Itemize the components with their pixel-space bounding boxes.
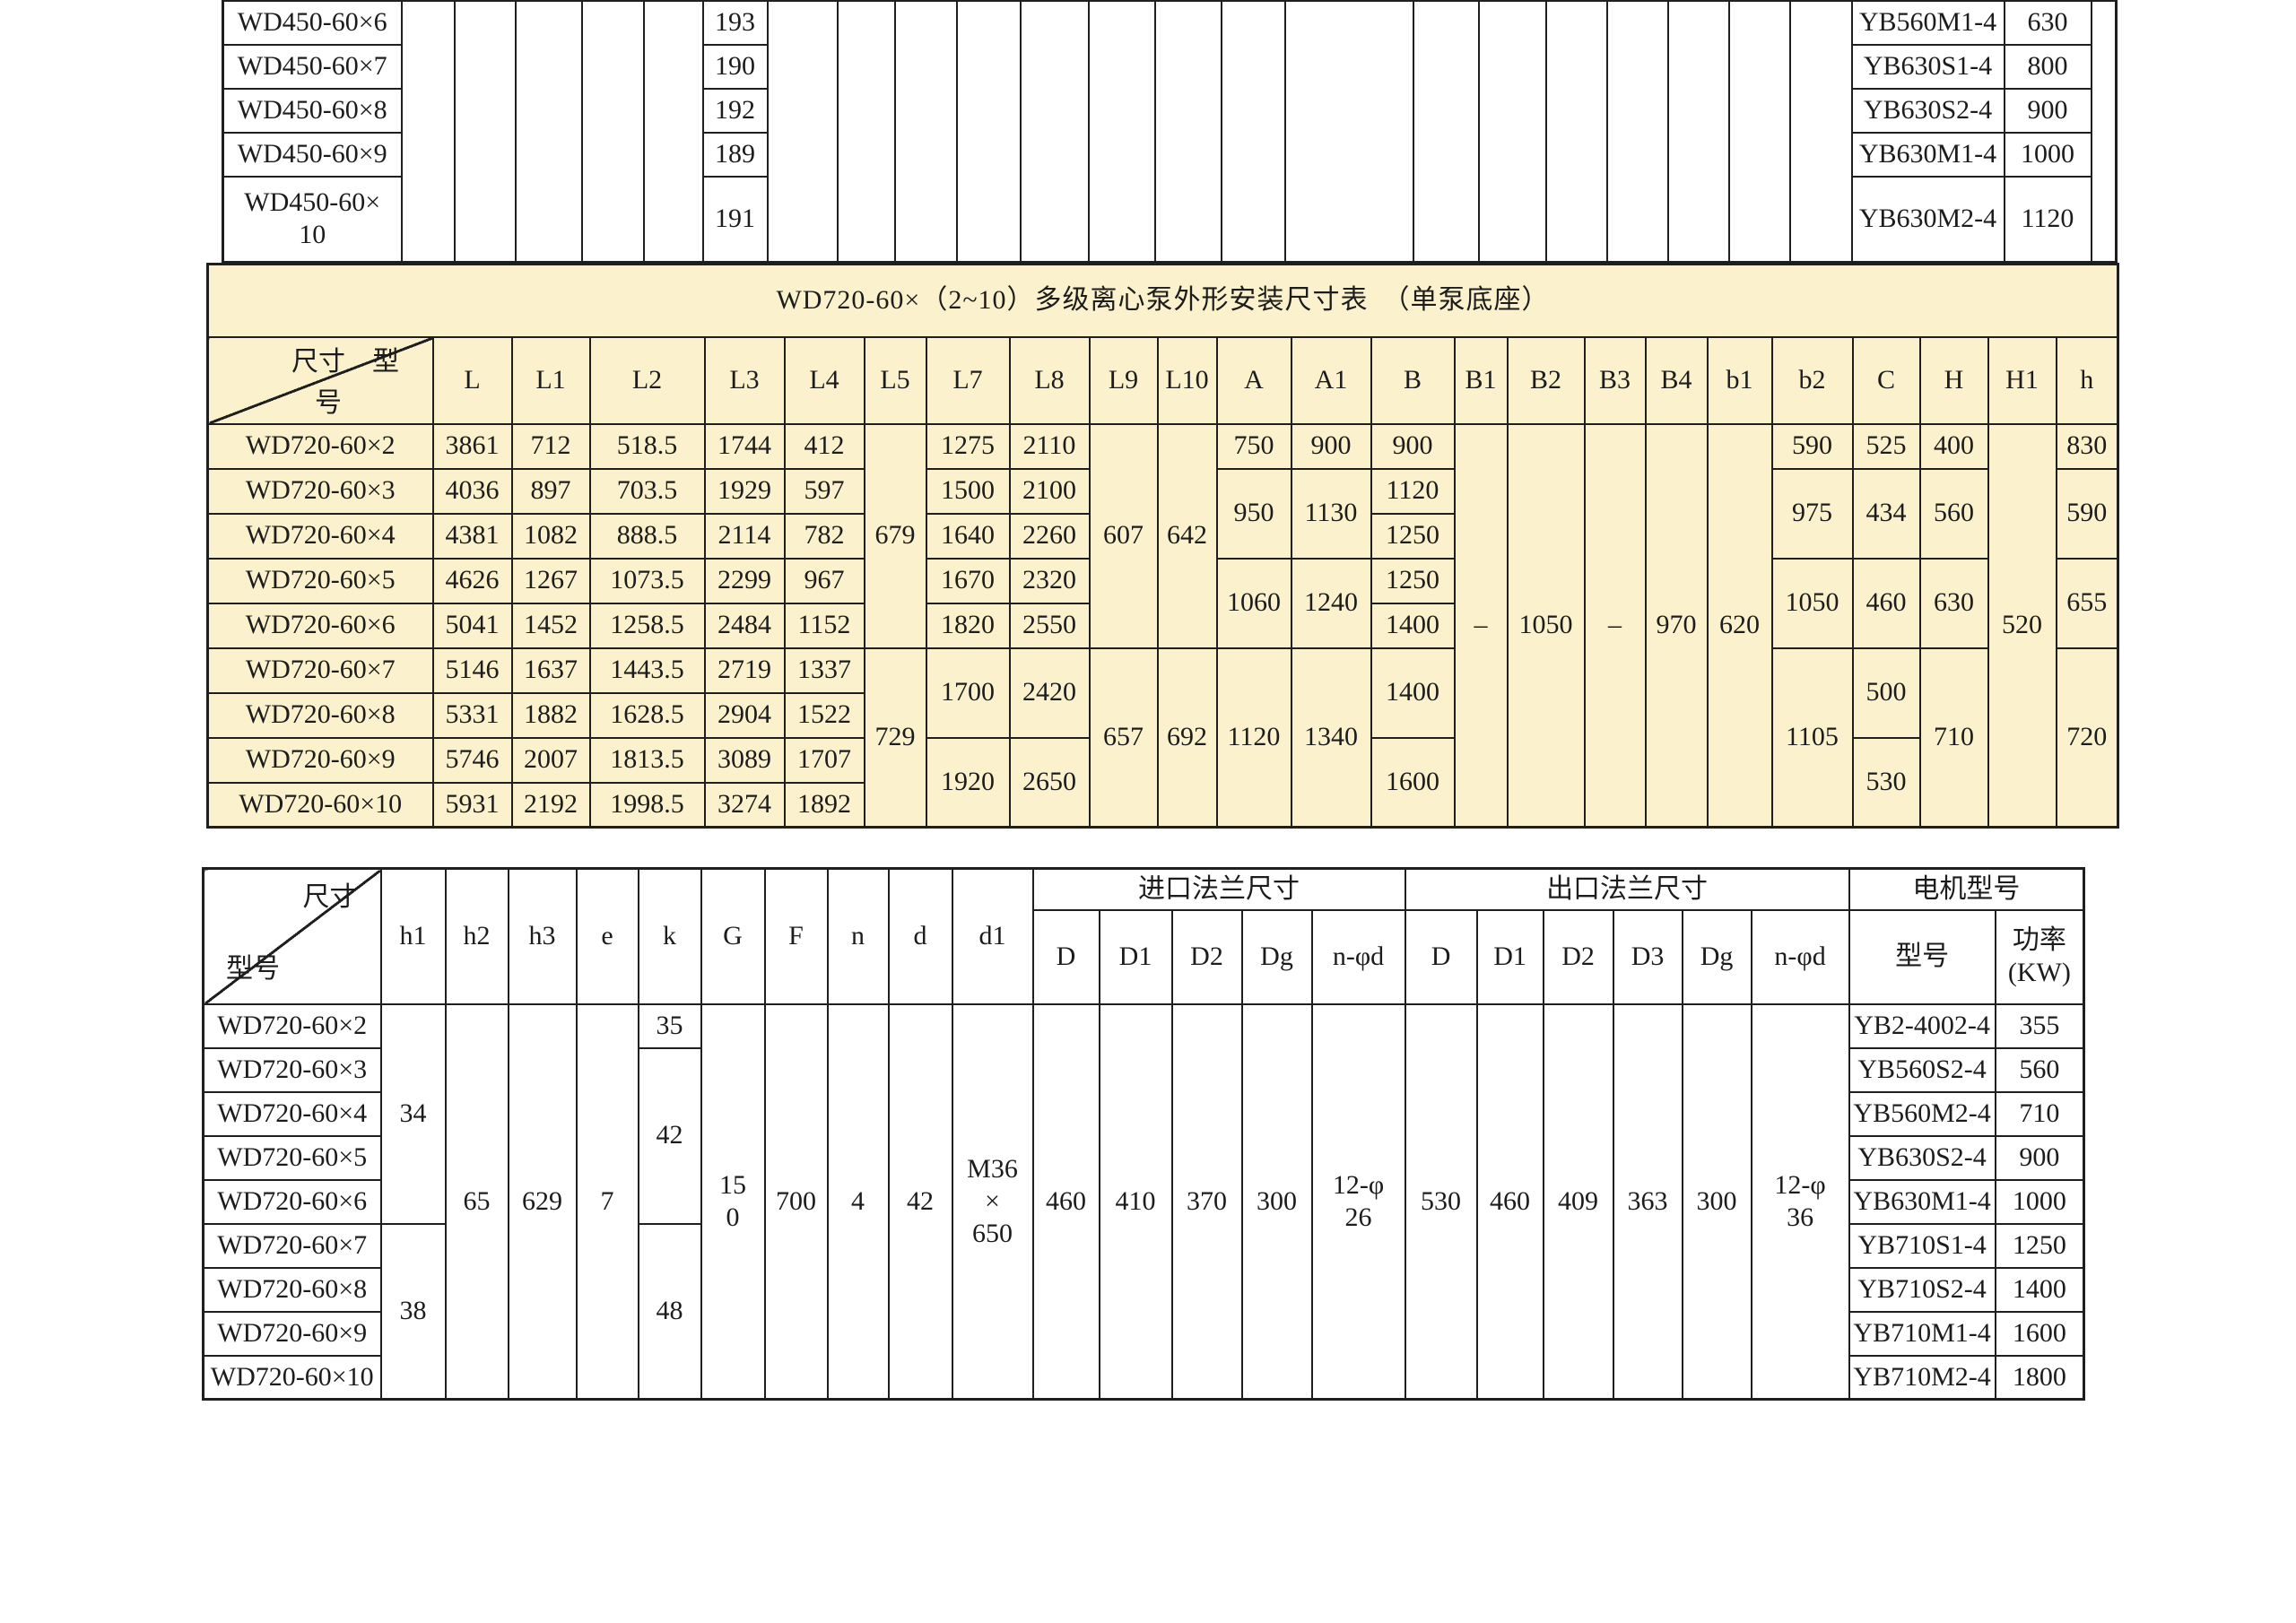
motor-power-cell: 560 (1996, 1048, 2084, 1092)
dim-cell-h: 720 (2057, 648, 2118, 828)
inlet-nphid-cell: 12-φ 26 (1312, 1004, 1405, 1400)
dim-cell-B: 1250 (1371, 514, 1455, 559)
motor-model-cell: YB710M2-4 (1849, 1356, 1996, 1400)
empty-cell (1790, 1, 1852, 262)
dim-cell-L3: 3274 (705, 783, 785, 828)
motor-power-cell: 800 (2005, 45, 2092, 89)
dim-cell-L4: 1152 (785, 603, 865, 648)
empty-cell (957, 1, 1021, 262)
outlet-flange-group-header: 出口法兰尺寸 (1405, 869, 1849, 910)
model-cell: WD720-60×4 (208, 514, 433, 559)
motor-power-cell: 1000 (2005, 133, 2092, 177)
header-cell: D2 (1544, 910, 1613, 1004)
empty-cell (1607, 1, 1668, 262)
dim-cell-L1: 1082 (512, 514, 590, 559)
dim-cell-B: 1250 (1371, 559, 1455, 603)
outlet-nphid-cell: 12-φ 36 (1752, 1004, 1849, 1400)
value-line: 36 (1752, 1202, 1848, 1234)
dim-cell-L10: 642 (1158, 424, 1217, 648)
dim-cell-h3: 629 (509, 1004, 577, 1400)
header-cell: D1 (1477, 910, 1544, 1004)
header-cell: Dg (1242, 910, 1312, 1004)
dim-cell-h1: 34 (381, 1004, 446, 1224)
dim-cell-L8: 2110 (1010, 424, 1090, 469)
document-page: { "colors":{"table_fill":"#fbf2cd","line… (0, 0, 2296, 1623)
value-line: 650 (953, 1218, 1032, 1250)
header-cell: L4 (785, 337, 865, 424)
dim-cell-B: 1400 (1371, 648, 1455, 738)
model-cell: WD720-60×3 (204, 1048, 381, 1092)
motor-model-cell: YB710S2-4 (1849, 1268, 1996, 1312)
header-cell: B (1371, 337, 1455, 424)
dim-cell-L7: 1920 (926, 738, 1010, 828)
model-cell: WD720-60×4 (204, 1092, 381, 1136)
dim-cell-C: 434 (1853, 469, 1920, 559)
dim-cell-L2: 518.5 (590, 424, 705, 469)
dim-cell-h2: 65 (446, 1004, 509, 1400)
dim-cell-G: 15 0 (701, 1004, 765, 1400)
value-line: × (953, 1185, 1032, 1218)
empty-cell (644, 1, 703, 262)
empty-cell (1222, 1, 1285, 262)
header-cell: b2 (1772, 337, 1853, 424)
dim-cell-h: 830 (2057, 424, 2118, 469)
dim-cell-L: 5041 (433, 603, 512, 648)
header-cell: A (1217, 337, 1291, 424)
dim-cell-L: 4381 (433, 514, 512, 559)
motor-model-cell: YB630M1-4 (1849, 1180, 1996, 1224)
dim-cell-k: 48 (639, 1224, 701, 1400)
dim-cell-C: 525 (1853, 424, 1920, 469)
inlet-Dg-cell: 300 (1242, 1004, 1312, 1400)
dim-cell-A: 950 (1217, 469, 1291, 559)
dim-cell-L: 5746 (433, 738, 512, 783)
dim-cell-d1: M36 × 650 (952, 1004, 1033, 1400)
dim-cell-L2: 888.5 (590, 514, 705, 559)
header-cell: e (577, 869, 639, 1004)
model-cell: WD720-60×8 (204, 1268, 381, 1312)
dim-cell-L3: 2719 (705, 648, 785, 693)
header-cell: n (828, 869, 889, 1004)
motor-power-cell: 1400 (1996, 1268, 2084, 1312)
wd450-spec-table: WD450-60×6 193 YB560M1-4 630 WD450-60×7 … (222, 0, 2118, 264)
dim-cell-L9: 657 (1090, 648, 1158, 828)
motor-model-cell: YB630S1-4 (1852, 45, 2005, 89)
motor-model-cell: YB560M2-4 (1849, 1092, 1996, 1136)
header-cell: A1 (1291, 337, 1371, 424)
header-cell: h2 (446, 869, 509, 1004)
header-cell: n-φd (1312, 910, 1405, 1004)
dim-cell: 192 (703, 89, 768, 133)
dim-cell-B2: 1050 (1508, 424, 1585, 828)
dim-cell-H: 560 (1920, 469, 1988, 559)
dim-cell-A1: 1240 (1291, 559, 1371, 648)
power-header-line: 功率 (1996, 924, 2083, 957)
header-cell: d1 (952, 869, 1033, 1004)
header-cell: L10 (1158, 337, 1217, 424)
dim-cell-F: 700 (765, 1004, 828, 1400)
dim-cell-L1: 1637 (512, 648, 590, 693)
dim-cell-B: 1400 (1371, 603, 1455, 648)
dim-cell-L2: 1073.5 (590, 559, 705, 603)
dim-cell-L1: 1267 (512, 559, 590, 603)
corner-label-dimension: 尺寸 型 (291, 347, 399, 378)
header-cell: G (701, 869, 765, 1004)
dim-cell-L4: 597 (785, 469, 865, 514)
dim-cell-L2: 1628.5 (590, 693, 705, 738)
dim-cell-h: 655 (2057, 559, 2118, 648)
model-cell: WD720-60×2 (204, 1004, 381, 1048)
dim-cell-L4: 967 (785, 559, 865, 603)
dim-cell-A1: 1340 (1291, 648, 1371, 828)
model-cell: WD450-60×6 (223, 1, 402, 45)
dim-cell-L3: 1929 (705, 469, 785, 514)
header-cell: B3 (1585, 337, 1646, 424)
corner-label-model: 号 (315, 388, 342, 420)
wd720-outline-dimension-table: WD720-60×（2~10）多级离心泵外形安装尺寸表 （单泵底座） 尺寸 型 … (206, 263, 2119, 829)
model-cell: WD720-60×9 (204, 1312, 381, 1356)
dim-cell-L7: 1275 (926, 424, 1010, 469)
inlet-D2-cell: 370 (1172, 1004, 1242, 1400)
dim-cell-A1: 900 (1291, 424, 1371, 469)
dim-cell-L2: 1813.5 (590, 738, 705, 783)
dim-cell-L: 5931 (433, 783, 512, 828)
dim-cell-A: 750 (1217, 424, 1291, 469)
motor-power-cell: 1800 (1996, 1356, 2084, 1400)
dim-cell-L1: 712 (512, 424, 590, 469)
dim-cell-L5: 679 (865, 424, 926, 648)
header-cell: L (433, 337, 512, 424)
header-cell: B2 (1508, 337, 1585, 424)
dim-cell-L5: 729 (865, 648, 926, 828)
dim-cell-b1: 620 (1708, 424, 1772, 828)
empty-cell (838, 1, 895, 262)
empty-cell (1089, 1, 1155, 262)
outlet-D1-cell: 460 (1477, 1004, 1544, 1400)
dim-cell-k: 42 (639, 1048, 701, 1224)
empty-cell (1729, 1, 1790, 262)
motor-power-cell: 900 (2005, 89, 2092, 133)
header-cell: D3 (1613, 910, 1683, 1004)
dim-cell-B: 1120 (1371, 469, 1455, 514)
header-cell: L5 (865, 337, 926, 424)
dim-cell-L3: 3089 (705, 738, 785, 783)
dim-cell-L1: 2192 (512, 783, 590, 828)
dim-cell-L4: 1707 (785, 738, 865, 783)
model-line: WD450-60× (224, 187, 401, 219)
wd720-install-flange-motor-table: 尺寸 型号 h1 h2 h3 e k G F n d d1 进口法兰尺寸 出口法… (202, 867, 2085, 1401)
model-cell: WD720-60×6 (204, 1180, 381, 1224)
dim-cell-h1: 38 (381, 1224, 446, 1400)
dim-cell-L7: 1820 (926, 603, 1010, 648)
empty-cell (768, 1, 838, 262)
model-cell: WD450-60×9 (223, 133, 402, 177)
value-line: 12-φ (1313, 1169, 1405, 1202)
header-cell: L9 (1090, 337, 1158, 424)
motor-power-cell: 355 (1996, 1004, 2084, 1048)
dim-cell-L10: 692 (1158, 648, 1217, 828)
dim-cell-C: 500 (1853, 648, 1920, 738)
dim-cell-L: 3861 (433, 424, 512, 469)
corner-header-cell: 尺寸 型 号 (208, 337, 433, 424)
motor-power-cell: 1250 (1996, 1224, 2084, 1268)
motor-power-cell: 630 (2005, 1, 2092, 45)
dim-cell-h: 590 (2057, 469, 2118, 559)
dim-cell: 191 (703, 177, 768, 262)
dim-cell-b2: 1105 (1772, 648, 1853, 828)
dim-cell-L4: 782 (785, 514, 865, 559)
motor-power-cell: 1120 (2005, 177, 2092, 262)
empty-cell (1413, 1, 1479, 262)
dim-cell-A1: 1130 (1291, 469, 1371, 559)
dim-cell-L3: 2114 (705, 514, 785, 559)
model-cell: WD450-60× 10 (223, 177, 402, 262)
header-cell: F (765, 869, 828, 1004)
motor-model-header-cell: 型号 (1849, 910, 1996, 1004)
motor-power-cell: 1600 (1996, 1312, 2084, 1356)
dim-cell-L3: 1744 (705, 424, 785, 469)
dim-cell-H: 400 (1920, 424, 1988, 469)
dim-cell-L: 5146 (433, 648, 512, 693)
header-cell: D2 (1172, 910, 1242, 1004)
dim-cell-L9: 607 (1090, 424, 1158, 648)
motor-power-cell: 710 (1996, 1092, 2084, 1136)
dim-cell-L1: 1882 (512, 693, 590, 738)
dim-cell-H: 630 (1920, 559, 1988, 648)
motor-power-cell: 1000 (1996, 1180, 2084, 1224)
dim-cell-L8: 2320 (1010, 559, 1090, 603)
model-cell: WD450-60×7 (223, 45, 402, 89)
header-cell: L8 (1010, 337, 1090, 424)
empty-cell (2092, 1, 2117, 262)
outlet-D3-cell: 363 (1613, 1004, 1683, 1400)
value-line: 26 (1313, 1202, 1405, 1234)
dim-cell-A: 1120 (1217, 648, 1291, 828)
dim-cell-L8: 2100 (1010, 469, 1090, 514)
inlet-D1-cell: 410 (1100, 1004, 1172, 1400)
model-cell: WD720-60×6 (208, 603, 433, 648)
inlet-flange-group-header: 进口法兰尺寸 (1033, 869, 1405, 910)
empty-cell (1021, 1, 1089, 262)
dim-cell-L8: 2260 (1010, 514, 1090, 559)
dim-cell-L3: 2904 (705, 693, 785, 738)
dim-cell-L2: 1258.5 (590, 603, 705, 648)
header-cell: Dg (1683, 910, 1752, 1004)
dim-cell-B3: – (1585, 424, 1646, 828)
outlet-D-cell: 530 (1405, 1004, 1477, 1400)
model-cell: WD720-60×5 (208, 559, 433, 603)
header-cell: b1 (1708, 337, 1772, 424)
dim-cell-b2: 975 (1772, 469, 1853, 559)
empty-cell (402, 1, 455, 262)
power-header-line: (KW) (1996, 957, 2083, 989)
header-cell: L2 (590, 337, 705, 424)
model-line: 10 (224, 219, 401, 251)
dim-cell-L: 4036 (433, 469, 512, 514)
dim-cell-L1: 2007 (512, 738, 590, 783)
dim-cell-e: 7 (577, 1004, 639, 1400)
dim-cell-L4: 1892 (785, 783, 865, 828)
dim-cell-B1: – (1455, 424, 1508, 828)
model-cell: WD720-60×3 (208, 469, 433, 514)
motor-power-header-cell: 功率 (KW) (1996, 910, 2084, 1004)
header-cell: H1 (1988, 337, 2057, 424)
dim-cell-L7: 1700 (926, 648, 1010, 738)
header-cell: h3 (509, 869, 577, 1004)
dim-cell-L: 4626 (433, 559, 512, 603)
model-cell: WD720-60×10 (208, 783, 433, 828)
empty-cell (582, 1, 644, 262)
model-cell: WD720-60×9 (208, 738, 433, 783)
header-cell: k (639, 869, 701, 1004)
corner-label-model: 型号 (226, 954, 280, 985)
dim-cell-C: 460 (1853, 559, 1920, 648)
outlet-D2-cell: 409 (1544, 1004, 1613, 1400)
empty-cell (1546, 1, 1607, 262)
header-cell: B1 (1455, 337, 1508, 424)
dim-cell-C: 530 (1853, 738, 1920, 828)
dim-cell-H1: 520 (1988, 424, 2057, 828)
dim-cell-L4: 1522 (785, 693, 865, 738)
corner-header-cell: 尺寸 型号 (204, 869, 381, 1004)
header-cell: H (1920, 337, 1988, 424)
header-cell: D1 (1100, 910, 1172, 1004)
dim-cell-n: 4 (828, 1004, 889, 1400)
dim-cell-L3: 2484 (705, 603, 785, 648)
header-cell: L3 (705, 337, 785, 424)
dim-cell-L1: 897 (512, 469, 590, 514)
empty-cell (1285, 1, 1413, 262)
motor-power-cell: 900 (1996, 1136, 2084, 1180)
dim-cell-B: 1600 (1371, 738, 1455, 828)
motor-model-cell: YB560S2-4 (1849, 1048, 1996, 1092)
motor-group-header: 电机型号 (1849, 869, 2084, 910)
value-line: 0 (702, 1202, 764, 1234)
motor-model-cell: YB560M1-4 (1852, 1, 2005, 45)
dim-cell-b2: 590 (1772, 424, 1853, 469)
value-line: 15 (702, 1169, 764, 1202)
empty-cell (516, 1, 582, 262)
dim-cell-A: 1060 (1217, 559, 1291, 648)
dim-cell-L8: 2550 (1010, 603, 1090, 648)
motor-model-cell: YB630S2-4 (1852, 89, 2005, 133)
corner-label-dimension: 尺寸 (303, 882, 357, 914)
dim-cell-L2: 703.5 (590, 469, 705, 514)
header-cell: D (1405, 910, 1477, 1004)
motor-model-cell: YB710S1-4 (1849, 1224, 1996, 1268)
dim-cell-b2: 1050 (1772, 559, 1853, 648)
header-cell: L1 (512, 337, 590, 424)
dim-cell-L: 5331 (433, 693, 512, 738)
header-cell: n-φd (1752, 910, 1849, 1004)
dim-cell-L8: 2420 (1010, 648, 1090, 738)
dim-cell: 190 (703, 45, 768, 89)
model-cell: WD720-60×10 (204, 1356, 381, 1400)
dim-cell: 189 (703, 133, 768, 177)
dim-cell-L3: 2299 (705, 559, 785, 603)
motor-model-cell: YB2-4002-4 (1849, 1004, 1996, 1048)
dim-cell-B: 900 (1371, 424, 1455, 469)
dim-cell-H: 710 (1920, 648, 1988, 828)
dim-cell-L7: 1500 (926, 469, 1010, 514)
header-cell: d (889, 869, 952, 1004)
dim-cell: 193 (703, 1, 768, 45)
model-cell: WD720-60×5 (204, 1136, 381, 1180)
empty-cell (895, 1, 957, 262)
empty-cell (1155, 1, 1222, 262)
model-cell: WD720-60×2 (208, 424, 433, 469)
dim-cell-L2: 1443.5 (590, 648, 705, 693)
empty-cell (1479, 1, 1546, 262)
header-cell: h (2057, 337, 2118, 424)
empty-cell (1668, 1, 1729, 262)
empty-cell (455, 1, 516, 262)
header-cell: C (1853, 337, 1920, 424)
dim-cell-L4: 1337 (785, 648, 865, 693)
motor-model-cell: YB630S2-4 (1849, 1136, 1996, 1180)
dim-cell-L4: 412 (785, 424, 865, 469)
motor-model-cell: YB630M2-4 (1852, 177, 2005, 262)
dim-cell-k: 35 (639, 1004, 701, 1048)
table-title: WD720-60×（2~10）多级离心泵外形安装尺寸表 （单泵底座） (208, 265, 2118, 337)
dim-cell-L2: 1998.5 (590, 783, 705, 828)
motor-model-cell: YB710M1-4 (1849, 1312, 1996, 1356)
header-cell: B4 (1646, 337, 1708, 424)
dim-cell-L1: 1452 (512, 603, 590, 648)
model-cell: WD720-60×7 (208, 648, 433, 693)
model-cell: WD450-60×8 (223, 89, 402, 133)
header-cell: h1 (381, 869, 446, 1004)
motor-model-cell: YB630M1-4 (1852, 133, 2005, 177)
dim-cell-L7: 1640 (926, 514, 1010, 559)
value-line: 12-φ (1752, 1169, 1848, 1202)
dim-cell-L7: 1670 (926, 559, 1010, 603)
dim-cell-d: 42 (889, 1004, 952, 1400)
model-cell: WD720-60×8 (208, 693, 433, 738)
inlet-D-cell: 460 (1033, 1004, 1100, 1400)
outlet-Dg-cell: 300 (1683, 1004, 1752, 1400)
value-line: M36 (953, 1153, 1032, 1185)
header-cell: D (1033, 910, 1100, 1004)
dim-cell-B4: 970 (1646, 424, 1708, 828)
header-cell: L7 (926, 337, 1010, 424)
dim-cell-L8: 2650 (1010, 738, 1090, 828)
model-cell: WD720-60×7 (204, 1224, 381, 1268)
